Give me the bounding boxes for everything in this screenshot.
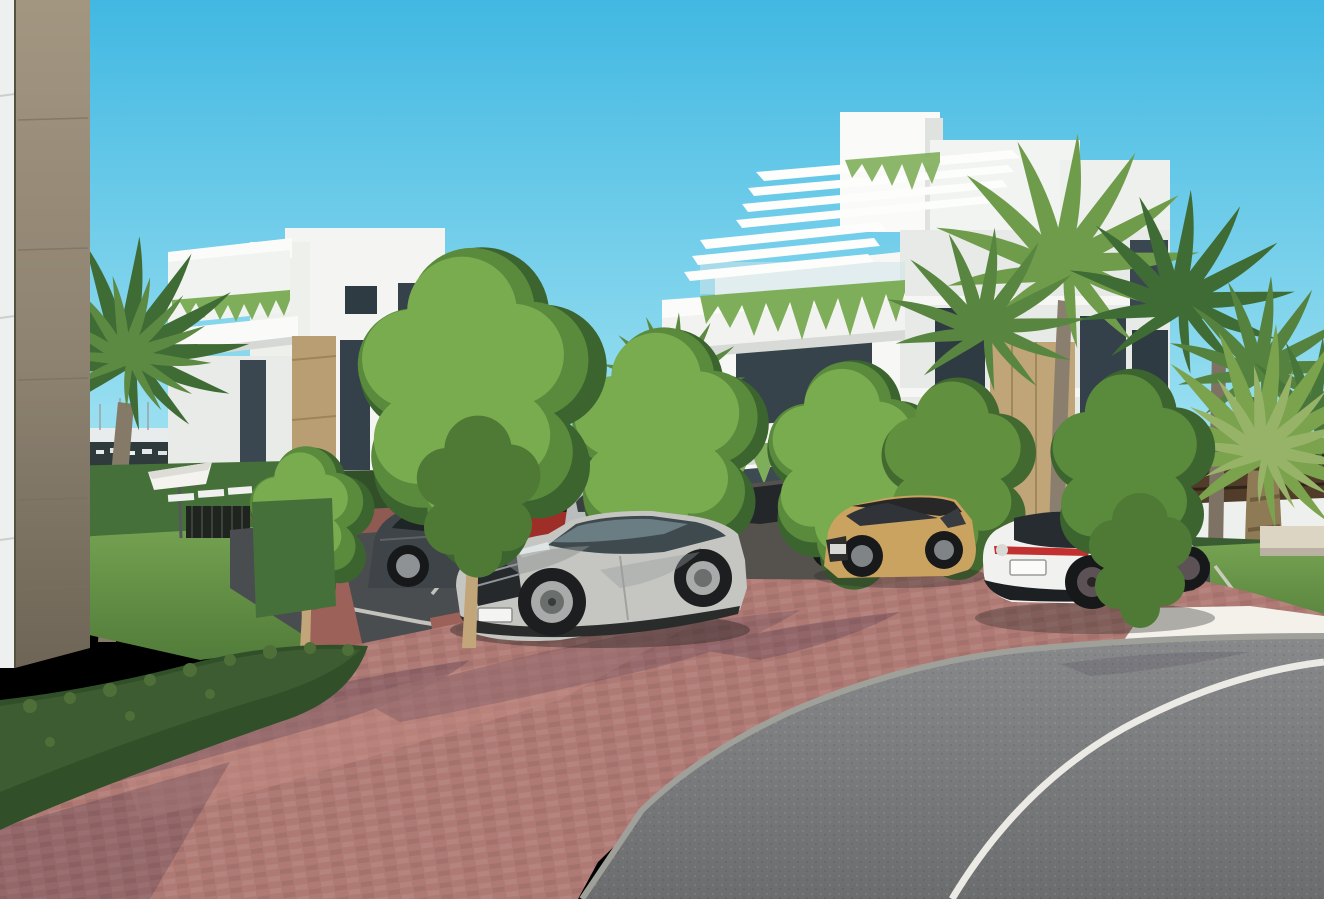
foreground-building-corner (0, 0, 90, 668)
boxwood-hedge-block (252, 498, 336, 618)
stone-column (15, 0, 90, 668)
wall-panel (0, 0, 15, 668)
render-viewport (0, 0, 1324, 899)
